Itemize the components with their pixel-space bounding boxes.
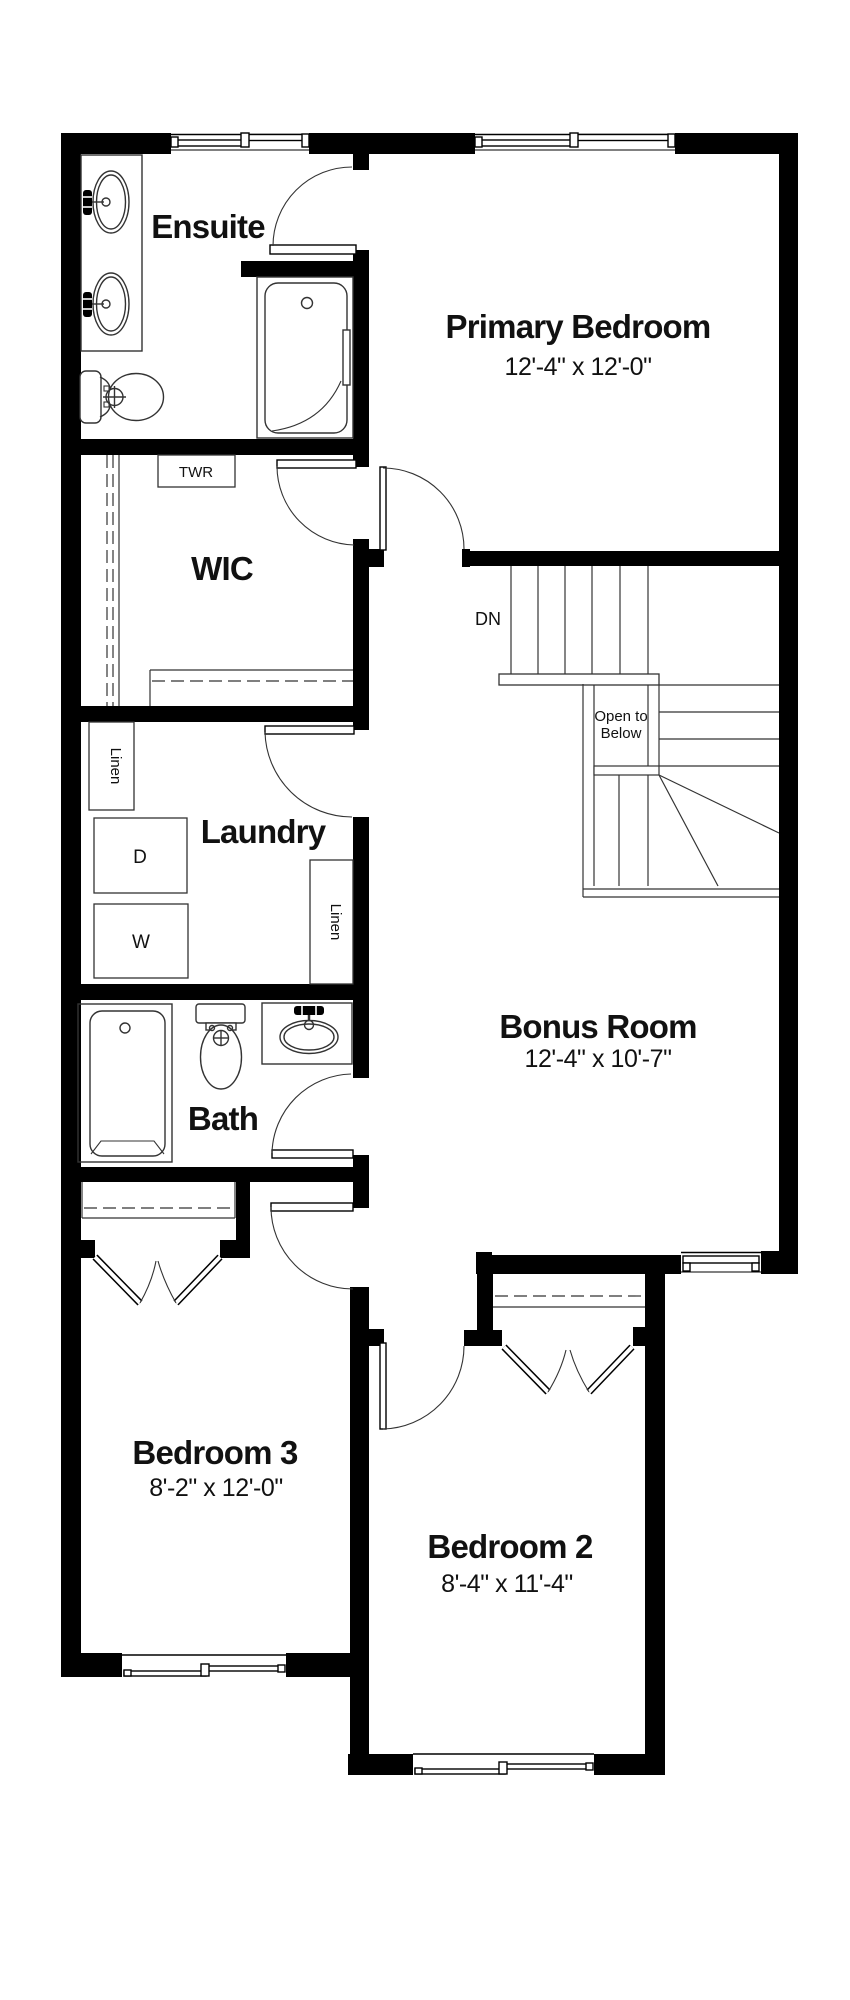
svg-text:Open to: Open to: [594, 708, 647, 725]
svg-text:12'-4" x 12'-0": 12'-4" x 12'-0": [504, 353, 651, 381]
svg-text:Bath: Bath: [188, 1100, 258, 1137]
svg-text:TWR: TWR: [179, 464, 213, 481]
svg-text:WIC: WIC: [191, 550, 253, 587]
svg-text:8'-4" x 11'-4": 8'-4" x 11'-4": [441, 1570, 573, 1598]
svg-text:Linen: Linen: [107, 748, 124, 785]
svg-text:DN: DN: [475, 609, 501, 629]
svg-text:Below: Below: [601, 725, 642, 742]
svg-text:Ensuite: Ensuite: [151, 208, 265, 245]
svg-text:Laundry: Laundry: [201, 813, 327, 850]
svg-text:Linen: Linen: [327, 904, 344, 941]
svg-text:D: D: [133, 847, 147, 868]
svg-text:8'-2" x 12'-0": 8'-2" x 12'-0": [149, 1474, 283, 1502]
svg-text:Bonus Room: Bonus Room: [499, 1008, 696, 1045]
svg-text:Primary Bedroom: Primary Bedroom: [446, 308, 711, 345]
svg-text:12'-4" x 10'-7": 12'-4" x 10'-7": [524, 1045, 671, 1073]
svg-text:W: W: [132, 932, 150, 953]
svg-text:Bedroom 2: Bedroom 2: [427, 1528, 593, 1565]
svg-text:Bedroom 3: Bedroom 3: [132, 1434, 298, 1471]
